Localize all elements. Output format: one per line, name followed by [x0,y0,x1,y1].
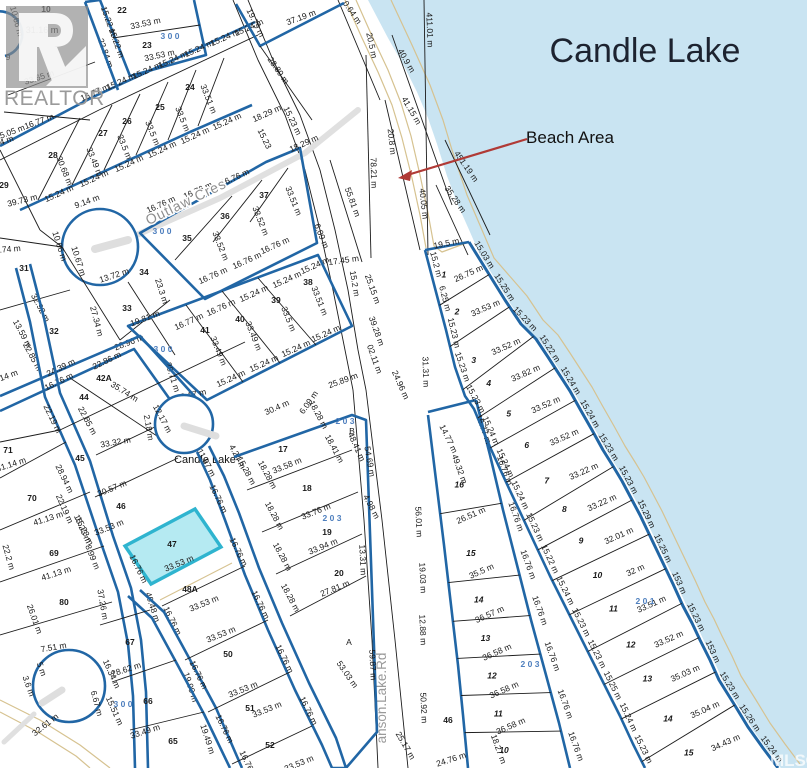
svg-text:2 0 1: 2 0 1 [636,596,655,606]
svg-text:11: 11 [609,604,618,614]
svg-text:10: 10 [593,570,603,580]
svg-text:4: 4 [485,378,491,388]
svg-text:12.88 m: 12.88 m [417,614,429,645]
svg-text:46: 46 [116,501,126,511]
svg-text:411.01 m: 411.01 m [424,12,435,47]
svg-text:Candle Lake: Candle Lake [550,32,741,70]
svg-text:37: 37 [259,190,269,200]
svg-text:25: 25 [155,102,165,112]
svg-text:17: 17 [278,444,288,454]
svg-text:8: 8 [562,504,567,514]
svg-text:48A: 48A [182,584,198,594]
svg-text:22: 22 [117,5,127,15]
svg-text:33: 33 [122,303,132,313]
svg-text:45: 45 [75,453,85,463]
svg-text:69: 69 [49,548,59,558]
svg-text:67: 67 [125,637,135,647]
svg-text:REALTOR: REALTOR [4,87,105,110]
svg-text:27: 27 [98,128,108,138]
svg-text:23: 23 [142,40,152,50]
svg-text:34: 34 [139,267,149,277]
svg-text:56.01 m: 56.01 m [413,506,425,537]
svg-text:52: 52 [265,740,275,750]
svg-text:Candle Lake: Candle Lake [174,454,236,466]
svg-text:26: 26 [122,116,132,126]
svg-text:46: 46 [443,715,453,725]
svg-text:13: 13 [643,673,653,683]
svg-text:19.03 m: 19.03 m [417,562,429,593]
svg-text:18: 18 [302,483,312,493]
svg-text:15: 15 [684,747,694,757]
svg-text:70: 70 [27,493,37,503]
svg-text:2 0 3: 2 0 3 [521,659,540,669]
svg-text:3: 3 [471,355,476,365]
svg-text:2 0 3: 2 0 3 [323,513,342,523]
svg-text:29: 29 [0,180,9,190]
svg-text:24: 24 [185,82,195,92]
svg-text:42A: 42A [96,373,112,383]
svg-text:A: A [346,637,352,647]
svg-text:35: 35 [182,233,192,243]
svg-text:Beach Area: Beach Area [526,128,614,147]
svg-text:19: 19 [322,527,332,537]
svg-text:3 0 0: 3 0 0 [161,31,180,41]
svg-text:20: 20 [334,568,344,578]
svg-text:3 0 0: 3 0 0 [153,226,172,236]
svg-text:66: 66 [143,696,153,706]
svg-text:36: 36 [220,211,230,221]
svg-text:14: 14 [474,594,484,604]
svg-text:44: 44 [79,392,89,402]
svg-text:80: 80 [59,597,69,607]
svg-text:59.87 m: 59.87 m [367,649,379,680]
svg-text:41: 41 [200,325,210,335]
svg-text:2: 2 [454,307,460,317]
svg-text:65: 65 [168,736,178,746]
svg-text:32: 32 [49,326,59,336]
svg-text:MLS®: MLS® [770,751,807,768]
svg-text:39: 39 [271,295,281,305]
svg-text:6: 6 [524,440,529,450]
svg-text:14: 14 [663,714,673,724]
svg-text:78.21 m: 78.21 m [368,157,379,188]
svg-text:12: 12 [487,671,497,681]
svg-text:9: 9 [579,536,584,546]
svg-text:5: 5 [506,409,511,419]
svg-text:50.92 m: 50.92 m [418,692,430,723]
svg-text:15: 15 [466,548,476,558]
svg-text:47: 47 [167,539,177,549]
svg-text:31.31 m: 31.31 m [420,356,431,387]
svg-text:11: 11 [494,708,503,718]
svg-text:71: 71 [3,445,13,455]
svg-text:13.31 m: 13.31 m [357,544,369,575]
svg-text:®: ® [95,86,102,96]
svg-text:2 0 3: 2 0 3 [336,416,355,426]
svg-text:31: 31 [19,263,29,273]
svg-text:13: 13 [481,633,491,643]
svg-text:38: 38 [303,277,313,287]
svg-text:12: 12 [626,639,636,649]
svg-text:50: 50 [223,649,233,659]
